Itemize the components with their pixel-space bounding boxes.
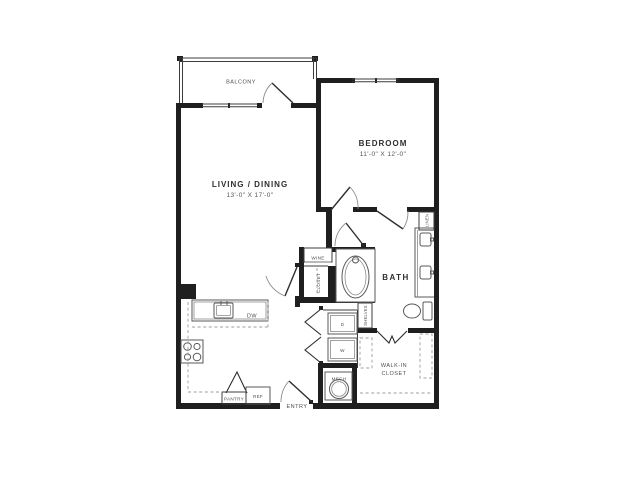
vanity-counter — [415, 228, 434, 297]
wall-mech-right — [352, 368, 357, 409]
label-dryer: D — [341, 322, 345, 327]
floor-plan-drawing: BALCONY LIVING / DINING 13'-0" X 17'-0" … — [0, 0, 618, 480]
label-linen: LINEN — [425, 214, 430, 227]
wall-left-outer — [176, 103, 181, 409]
walk-in-closet-doors — [377, 331, 407, 343]
label-walk-in-closet-1: WALK-IN — [381, 363, 407, 369]
wall-mech-top — [318, 363, 357, 368]
wall-bedroom-top-right — [399, 78, 439, 83]
label-wine: WINE — [311, 256, 324, 261]
jamb-closet-door — [295, 263, 300, 267]
wall-bedroom-bottom-c — [407, 207, 439, 212]
label-entry: ENTRY — [286, 404, 307, 410]
structural-column — [176, 284, 196, 299]
wall-wic-top-left — [357, 328, 377, 333]
label-hall-closet: CLOSET — [316, 273, 321, 293]
wall-living-top-left — [176, 103, 202, 108]
wall-bedroom-bottom-a — [316, 207, 332, 212]
label-dishwasher: DW — [247, 314, 257, 320]
wall-hall-divider — [326, 212, 332, 248]
floor-plan-page: BALCONY LIVING / DINING 13'-0" X 17'-0" … — [0, 0, 618, 480]
bedroom-door — [331, 187, 358, 210]
label-washer: W — [340, 348, 345, 353]
entry-door — [281, 381, 312, 402]
hall-closet-door — [266, 267, 297, 296]
wall-bottom-right — [313, 403, 439, 409]
wall-closet-tub-bar — [328, 266, 336, 298]
dims-bedroom: 11'-0" X 12'-0" — [360, 151, 407, 158]
label-living-dining: LIVING / DINING — [212, 180, 288, 189]
sink-2 — [420, 266, 431, 279]
label-bedroom: BEDROOM — [359, 139, 408, 148]
label-pantry: PANTRY — [224, 397, 244, 402]
wall-mech-left — [318, 363, 323, 409]
label-refrigerator: REF — [253, 394, 263, 399]
jamb-bath-door — [373, 207, 377, 212]
jamb-balcony-door — [291, 103, 296, 108]
wall-bedroom-left — [316, 83, 321, 209]
wall-bedroom-top-left — [316, 78, 352, 83]
bath-door — [377, 211, 408, 229]
label-walk-in-closet-2: CLOSET — [381, 371, 406, 377]
wall-right-outer — [434, 78, 439, 409]
wall-wine-left — [299, 247, 304, 302]
pantry-bifold-door — [226, 372, 247, 393]
sink-1-faucet — [431, 238, 434, 241]
label-balcony: BALCONY — [226, 80, 256, 86]
toilet — [404, 302, 433, 320]
bathtub — [336, 249, 375, 302]
sink-1 — [420, 233, 431, 246]
walls — [176, 56, 439, 409]
washer-bifold-door — [305, 337, 321, 363]
balcony-door — [263, 83, 293, 103]
label-mech: MECH — [332, 377, 347, 382]
label-shelves: SHELVES — [363, 305, 368, 325]
dims-living-dining: 13'-0" X 17'-0" — [226, 192, 273, 199]
wall-wic-top-right — [408, 328, 439, 333]
stove — [181, 340, 203, 363]
sink-2-faucet — [431, 271, 434, 274]
dryer-bifold-door — [305, 309, 321, 335]
jamb-window-living-right — [257, 103, 262, 108]
label-bath: BATH — [382, 273, 410, 282]
hall-door — [335, 223, 364, 246]
